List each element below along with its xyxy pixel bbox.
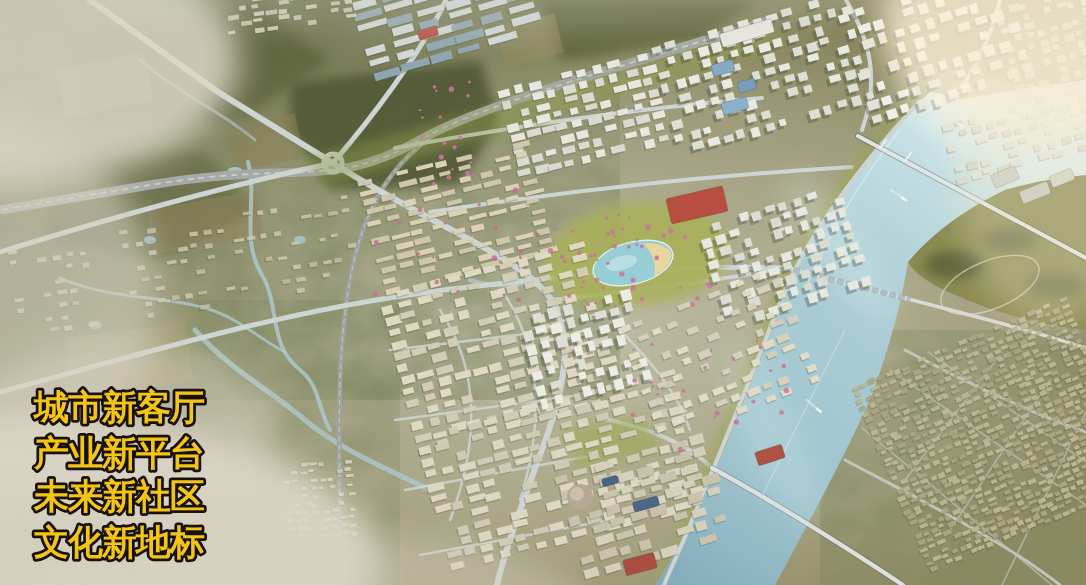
slogan-line-2: 产业新平台	[33, 433, 204, 473]
slogan-line-1: 城市新客厅	[32, 387, 205, 427]
slogan-line-4: 文化新地标	[34, 522, 205, 562]
aerial-city-masterplan-render: 城市新客厅 产业新平台 未来新社区 文化新地标	[0, 0, 1086, 585]
slogan-overlay: 城市新客厅 产业新平台 未来新社区 文化新地标	[18, 368, 318, 585]
slogan-line-3: 未来新社区	[33, 476, 204, 516]
